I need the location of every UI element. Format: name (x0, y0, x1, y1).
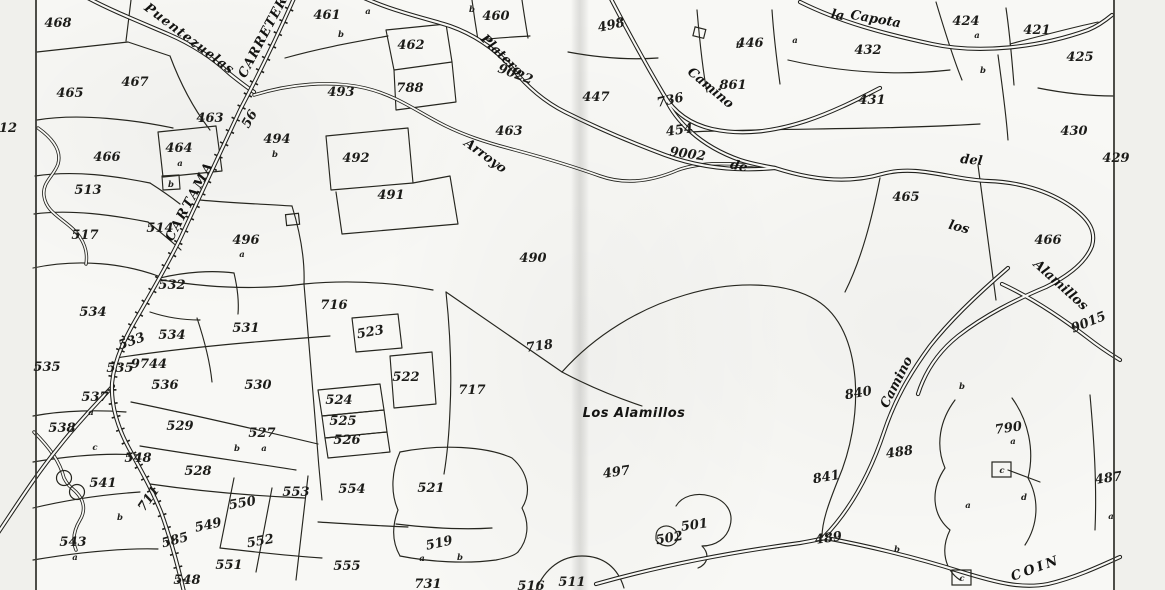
parcel-label: 56 (239, 108, 261, 131)
parcel-label: 462 (397, 38, 424, 53)
submarker-label: a (177, 159, 183, 169)
parcel-label: 454 (665, 121, 694, 140)
submarker-label: a (974, 31, 980, 41)
parcel-label: 526 (333, 433, 360, 448)
parcel-label: 492 (342, 151, 369, 166)
submarker-label: b (234, 444, 240, 454)
parcel-label: 421 (1023, 23, 1050, 38)
submarker-label: b (980, 66, 986, 76)
parcel-label: 493 (327, 85, 354, 100)
parcel-label: 488 (885, 443, 914, 462)
parcel-label: 429 (1102, 151, 1129, 166)
parcel-label: 788 (396, 81, 423, 96)
place-label: del (959, 152, 983, 169)
parcel-label: 501 (680, 516, 709, 535)
parcel-label: 494 (263, 132, 290, 147)
place-label: Los Alamillos (583, 406, 686, 421)
parcel-label: 840 (844, 384, 873, 403)
parcel-label: 554 (338, 482, 365, 497)
submarker-label: b (469, 5, 475, 15)
submarker-label: b (959, 382, 965, 392)
parcel-label: 548 (173, 573, 200, 588)
parcel-label: 534 (158, 328, 185, 343)
parcel-label: 502 (655, 529, 684, 548)
parcel-label: 489 (814, 529, 843, 548)
submarker-label: b (338, 30, 344, 40)
parcel-label: 521 (417, 481, 444, 496)
submarker-label: b (272, 150, 278, 160)
submarker-label: c (959, 574, 965, 584)
submarker-label: b (457, 553, 463, 563)
parcel-label: 527 (248, 426, 275, 441)
parcel-label: 535 (33, 360, 60, 375)
place-label: Capota (849, 8, 902, 32)
parcel-label: 460 (482, 9, 509, 24)
parcel-label: 716 (320, 298, 347, 313)
parcel-label: 432 (854, 43, 881, 58)
parcel-label: 531 (232, 321, 259, 336)
parcel-label: 513 (74, 183, 101, 198)
parcel-label: 530 (244, 378, 271, 393)
parcel-label: 548 (124, 451, 151, 466)
parcel-label: 466 (93, 150, 120, 165)
parcel-label: 466 (1034, 233, 1061, 248)
parcel-label: 550 (228, 494, 257, 513)
parcel-label: 718 (525, 337, 554, 356)
parcel-label: 536 (151, 378, 178, 393)
road-puentezuelas (86, 0, 254, 92)
parcel-label: 447 (582, 90, 609, 105)
submarker-label: a (792, 36, 798, 46)
parcel-label: 522 (392, 370, 419, 385)
parcel-label: 497 (602, 463, 631, 482)
parcel-label: 537 (81, 390, 108, 405)
parcel-label: 543 (59, 535, 86, 550)
place-label: de (729, 157, 749, 175)
parcel-label: 463 (495, 124, 522, 139)
parcel-label: 532 (158, 278, 185, 293)
submarker-label: a (1108, 512, 1114, 522)
parcel-label: 523 (356, 323, 385, 342)
parcel-label: 465 (56, 86, 83, 101)
parcel-label: 516 (517, 579, 544, 590)
submarker-label: a (239, 250, 245, 260)
submarker-label: a (365, 7, 371, 17)
right-paper-margin (1115, 0, 1165, 590)
parcel-label: 524 (325, 393, 352, 408)
submarker-label: c (999, 466, 1005, 476)
parcel-label: 553 (282, 485, 309, 500)
paper-fold-crease (571, 0, 589, 590)
place-label: los (947, 218, 972, 238)
parcel-label: 717 (458, 383, 485, 398)
submarker-label: b (736, 41, 742, 51)
parcel-label: 549 (193, 515, 223, 535)
parcel-label: 491 (377, 188, 404, 203)
parcel-label: 465 (892, 190, 919, 205)
map-labels: 4684654674634664645135175141253253453453… (0, 0, 1130, 590)
parcel-label: 585 (160, 530, 190, 552)
parcel-label: 519 (424, 533, 454, 553)
submarker-label: b (117, 513, 123, 523)
parcel-label: 731 (414, 577, 441, 590)
parcel-label: 468 (44, 16, 71, 31)
parcel-label: 552 (246, 532, 275, 551)
parcel-label: 9015 (1069, 309, 1108, 336)
parcel-label: 430 (1060, 124, 1087, 139)
map-canvas: 4684654674634664645135175141253253453453… (0, 0, 1165, 590)
parcel-label: 790 (994, 419, 1023, 438)
scanned-cadastral-map: 4684654674634664645135175141253253453453… (0, 0, 1165, 590)
parcel-label: 551 (215, 558, 242, 573)
parcel-label: 9002 (669, 145, 707, 165)
parcel-label: 496 (232, 233, 259, 248)
parcel-label: 533 (116, 330, 147, 353)
submarker-label: a (965, 501, 971, 511)
parcel-label: 461 (313, 8, 340, 23)
parcel-label: 555 (333, 559, 360, 574)
parcel-label: 490 (519, 251, 546, 266)
parcel-label: 534 (79, 305, 106, 320)
parcel-label: 431 (858, 93, 885, 108)
parcel-label: 9744 (131, 357, 167, 372)
parcel-label: 538 (48, 421, 75, 436)
submarker-label: a (72, 553, 78, 563)
parcel-label: 467 (121, 75, 148, 90)
parcel-label: 517 (71, 228, 98, 243)
place-label: COIN (1009, 553, 1063, 585)
parcel-label: 535 (106, 361, 133, 376)
parcel-label: 464 (165, 141, 192, 156)
parcel-label: 12 (0, 121, 17, 136)
parcel-label: 529 (166, 419, 193, 434)
submarker-label: a (419, 554, 425, 564)
parcel-label: 498 (596, 15, 626, 35)
submarker-label: a (261, 444, 267, 454)
parcel-label: 528 (184, 464, 211, 479)
place-label: Puentezuelas (140, 0, 237, 78)
parcel-label: 425 (1066, 50, 1093, 65)
submarker-label: d (1021, 493, 1027, 503)
submarker-label: c (92, 443, 98, 453)
parcel-label: 541 (89, 476, 116, 491)
place-label: la (830, 7, 846, 24)
parcel-label: 463 (196, 111, 223, 126)
submarker-label: b (168, 180, 174, 190)
submarker-label: a (1010, 437, 1016, 447)
parcel-label: 424 (952, 14, 979, 29)
parcel-label: 525 (329, 414, 356, 429)
parcel-label: 511 (558, 575, 585, 590)
submarker-label: b (894, 545, 900, 555)
submarker-label: a (88, 408, 94, 418)
parcel-label: 736 (655, 90, 685, 110)
camino-right (824, 268, 1008, 537)
